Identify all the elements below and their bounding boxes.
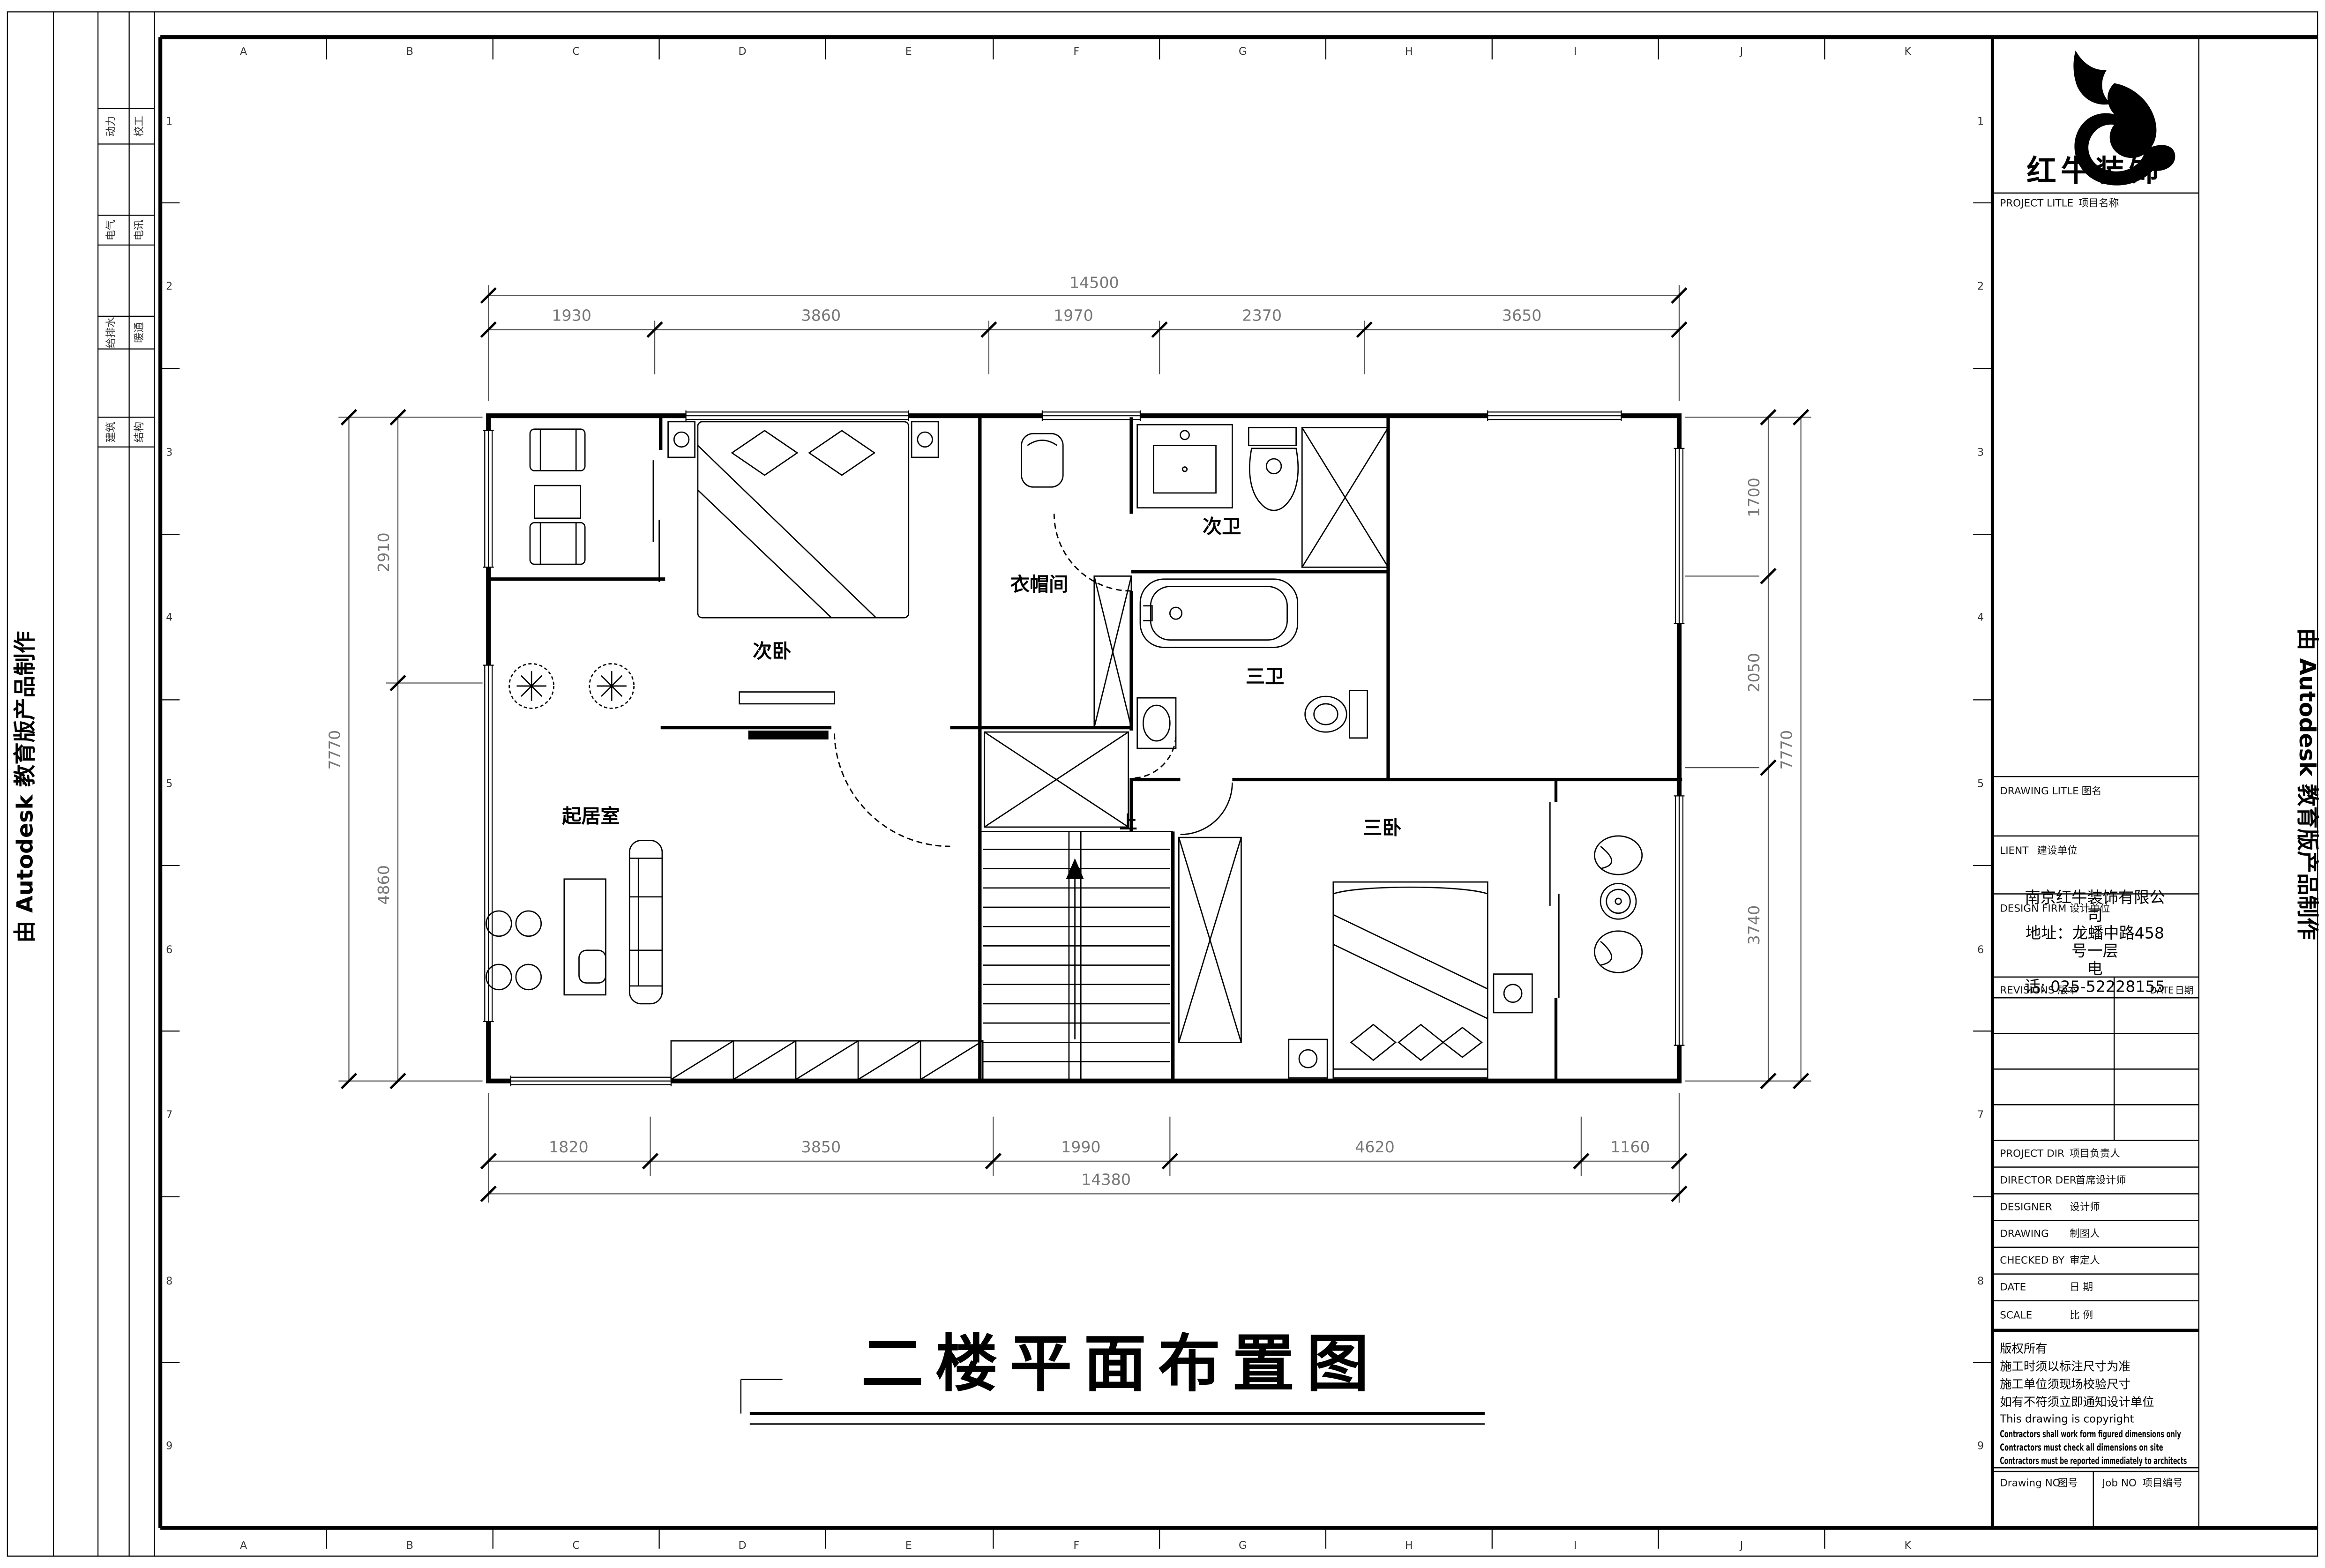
living-room-furniture [486,840,983,1079]
grid-letter: I [1574,45,1577,58]
field-project-dir-zh: 项目负责人 [2070,1148,2120,1159]
grid-reference-top: A B C D E F G H I J K [240,37,1912,60]
door-arc [834,514,1232,846]
grid-number: 3 [166,447,172,459]
copyright-line: Contractors must be reported immediately… [2000,1455,2187,1466]
title-block: 红牛装饰 PROJECT LITLE 项目名称 DRAWING LITLE 图名… [1992,37,2198,1528]
dim-top-seg: 3650 [1502,306,1542,324]
dim-bottom-seg: 4620 [1355,1138,1395,1156]
secondary-bathroom [1137,425,1388,567]
bay-window-lounge [1594,836,1642,973]
dim-bottom-seg: 1990 [1061,1138,1101,1156]
tv-icon [748,731,829,739]
sliding-door [1550,802,1559,998]
firm-info-line: 司 [2087,906,2102,925]
field-date-en: DATE [2000,1281,2026,1293]
armchair [530,523,585,564]
grid-reference-bottom: A B C D E F G H I J K [240,1528,1912,1551]
grid-letter: A [240,45,247,58]
autodesk-stamp-left: 由 Autodesk 教育版产品制作 [13,631,38,943]
grid-letter: D [738,1539,746,1552]
dim-top-overall: 14500 [1069,274,1119,292]
title-underline-notch [741,1380,783,1414]
field-checked-by-en: CHECKED BY [2000,1254,2065,1266]
field-client-en: LIENT [2000,845,2029,857]
field-checked-by-zh: 审定人 [2070,1254,2100,1266]
shower [1302,428,1388,567]
exterior-wall [488,416,1679,1081]
grid-number: 4 [1977,611,1984,623]
field-date-zh: 日 期 [2070,1281,2093,1293]
dim-right-seg: 3740 [1745,905,1763,945]
grid-number: 5 [166,777,172,790]
discipline-label: 暖通 [133,322,145,343]
copyright-line: 施工单位须现场校验尺寸 [2000,1377,2131,1391]
balcony-sitting-area [530,429,585,564]
grid-number: 2 [166,280,172,292]
cabinet-row [671,1041,983,1079]
field-designer-zh: 设计师 [2070,1201,2100,1213]
third-bathroom [1137,579,1368,748]
grid-letter: C [572,1539,579,1552]
stool [516,911,541,936]
grid-number: 5 [1977,777,1984,790]
drawing-sheet: 动力 校工 电气 电讯 给排水 暖通 建筑 结构 由 Autodesk 教育版产… [0,0,2325,1568]
secondary-bedroom-bed [668,422,939,739]
discipline-label: 结构 [133,422,145,442]
desk [564,879,606,995]
sofa [629,840,662,1004]
grid-letter: G [1239,45,1247,58]
copyright-line: 版权所有 [2000,1342,2047,1356]
field-director-zh: 首席设计师 [2076,1174,2126,1186]
grid-number: 1 [1977,115,1984,127]
grid-number: 8 [1977,1275,1984,1287]
grid-letter: J [1739,45,1743,58]
dim-right-seg: 2050 [1745,653,1763,693]
brand-name: 红牛装饰 [2026,154,2163,188]
field-drawing-litle-zh: 图名 [2081,785,2101,797]
desk-chair [579,950,606,983]
room-label-cloakroom: 衣帽间 [1010,573,1069,596]
autodesk-stamp-right: 由 Autodesk 教育版产品制作 [2294,628,2320,940]
nightstand [1289,1039,1327,1078]
grid-number: 7 [166,1109,172,1121]
grid-reference-right: 1 2 3 4 5 6 7 8 9 [1973,115,1992,1452]
grid-letter: K [1905,45,1912,58]
dim-right-seg: 1700 [1745,478,1763,517]
stairs [983,831,1170,1079]
stair-up-label: 上 [1120,812,1137,833]
nightstand [1494,974,1532,1013]
field-job-no-zh: 项目编号 [2142,1478,2183,1489]
field-designer-en: DESIGNER [2000,1201,2052,1213]
firm-info-line: 号一层 [2071,942,2118,960]
grid-letter: J [1739,1539,1743,1552]
discipline-label: 校工 [133,116,145,136]
armchair [530,429,585,471]
field-project-litle-zh: 项目名称 [2078,197,2119,209]
wardrobe [1179,837,1241,1042]
dim-bottom-overall: 14380 [1081,1171,1131,1189]
bathtub [1140,579,1298,648]
grid-number: 1 [166,115,172,127]
discipline-label: 电气 [105,220,117,240]
grid-number: 8 [166,1275,172,1287]
copyright-line: 如有不符须立即通知设计单位 [2000,1395,2154,1409]
room-label-secondary-bath: 次卫 [1203,515,1241,538]
discipline-strip: 动力 校工 电气 电讯 给排水 暖通 建筑 结构 [98,108,154,447]
grid-number: 9 [166,1440,172,1452]
grid-letter: I [1574,1539,1577,1552]
grid-number: 4 [166,611,172,623]
firm-info-line: 南京红牛装饰有限公 [2025,888,2165,906]
field-scale-zh: 比 例 [2070,1310,2093,1322]
field-director-en: DIRECTOR DER [2000,1174,2077,1186]
grid-letter: F [1073,1539,1079,1552]
grid-number: 6 [1977,944,1984,956]
discipline-label: 建筑 [105,422,117,442]
grid-letter: E [905,45,912,58]
room-label-living-room: 起居室 [562,805,620,827]
dim-bottom-seg: 3850 [801,1138,841,1156]
drawing-title: 二楼平面布置图 [741,1328,1485,1424]
dim-top-seg: 1930 [552,306,591,324]
dim-top-seg: 1970 [1054,306,1093,324]
discipline-label: 给排水 [105,317,117,348]
grid-letter: H [1405,45,1413,58]
grid-letter: B [406,45,413,58]
field-drawing-no-zh: 图号 [2058,1478,2078,1489]
grid-letter: B [406,1539,413,1552]
vanity [1137,425,1233,508]
sink [1137,698,1176,748]
dim-top-seg: 3860 [801,306,841,324]
grid-letter: K [1905,1539,1912,1552]
field-drawing-no-en: Drawing NO [2000,1478,2060,1489]
grid-letter: F [1073,45,1079,58]
copyright-line: Contractors must check all dimensions on… [2000,1442,2163,1453]
dim-top-seg: 2370 [1242,306,1282,324]
field-revisions-date-zh: 日期 [2175,985,2193,996]
dim-bottom-seg: 1160 [1610,1138,1650,1156]
field-project-litle-en: PROJECT LITLE [2000,197,2073,209]
dim-left-seg: 4860 [374,865,393,905]
toilet [1305,690,1368,738]
room-label-third-bedroom: 三卧 [1363,817,1401,839]
drawing-title-text: 二楼平面布置图 [861,1328,1381,1400]
firm-info-line: 电 [2087,960,2102,978]
discipline-label: 电讯 [133,220,145,240]
sliding-door [653,460,659,582]
field-drawing-by-en: DRAWING [2000,1228,2049,1239]
grid-letter: H [1405,1539,1413,1552]
toilet [1248,428,1298,511]
copyright-line: This drawing is copyright [1999,1413,2134,1425]
room-label-third-bath: 三卫 [1246,665,1284,688]
grid-letter: G [1239,1539,1247,1552]
stool [516,964,541,990]
design-firm-info: 南京红牛装饰有限公 司 地址：龙蟠中路458 号一层 电 话: 025-5222… [2025,888,2165,995]
room-label-secondary-bedroom: 次卧 [753,640,791,663]
dim-left-overall: 7770 [325,730,344,770]
grid-number: 6 [166,944,172,956]
dim-left-seg: 2910 [374,532,393,572]
firm-info-line: 地址：龙蟠中路458 [2026,924,2164,942]
grid-number: 9 [1977,1440,1984,1452]
sheet-frame [7,12,2318,1556]
firm-info-line: 话: 025-52228155 [2025,978,2165,996]
copyright-line: Contractors shall work form figured dime… [2000,1428,2181,1440]
dim-right-overall: 7770 [1778,730,1796,770]
cloakroom-furniture [984,433,1131,827]
field-drawing-litle-en: DRAWING LITLE [2000,785,2079,797]
grid-letter: E [905,1539,912,1552]
field-scale-en: SCALE [2000,1310,2032,1322]
grid-letter: A [240,1539,247,1552]
discipline-label: 动力 [105,116,117,136]
side-table [534,485,580,518]
grid-number: 2 [1977,280,1984,292]
grid-number: 7 [1977,1109,1984,1121]
nightstand [912,422,938,457]
grid-letter: D [738,45,746,58]
floor-plan: 次卧 衣帽间 次卫 三卫 起居室 三卧 上 [483,411,1685,1086]
field-drawing-by-zh: 制图人 [2070,1228,2100,1239]
copyright-line: 施工时须以标注尺寸为准 [2000,1359,2131,1374]
field-project-dir-en: PROJECT DIR [2000,1148,2064,1159]
copyright-block: 版权所有 施工时须以标注尺寸为准 施工单位须现场校验尺寸 如有不符须立即通知设计… [1999,1342,2187,1467]
field-job-no-en: Job NO [2101,1478,2137,1489]
third-bedroom-bed [1289,882,1533,1078]
plant [509,664,634,708]
nightstand [668,422,695,457]
interior-wall [488,417,1682,1079]
grid-number: 3 [1977,447,1984,459]
chair [1022,433,1063,487]
dresser [740,692,835,704]
dim-bottom-seg: 1820 [549,1138,589,1156]
lounge-chair [1594,931,1642,973]
grid-letter: C [572,45,579,58]
field-client-zh: 建设单位 [2037,845,2077,857]
grid-reference-left: 1 2 3 4 5 6 7 8 9 [160,115,179,1452]
